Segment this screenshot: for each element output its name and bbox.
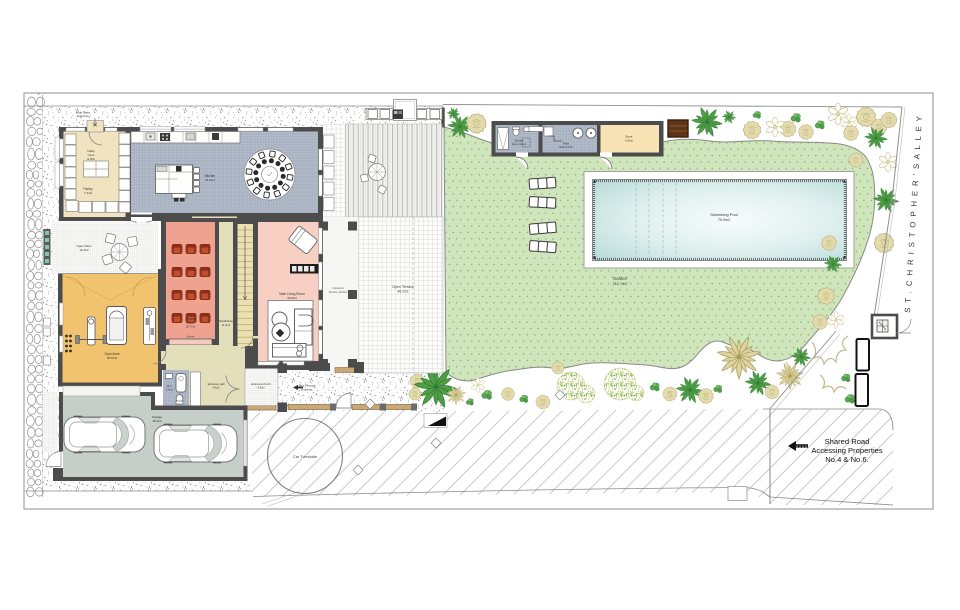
svg-text:46.9m2: 46.9m2 — [152, 419, 162, 423]
svg-text:70.0m2: 70.0m2 — [718, 218, 730, 222]
svg-text:Covered: Covered — [332, 286, 344, 290]
svg-text:96.2m2: 96.2m2 — [398, 289, 409, 293]
svg-text:Entrance: Entrance — [301, 387, 313, 391]
svg-text:Distribution: Distribution — [219, 319, 233, 323]
svg-text:Open Patio: Open Patio — [76, 244, 91, 248]
svg-text:41.9m2: 41.9m2 — [205, 178, 215, 182]
svg-text:40.8m2: 40.8m2 — [287, 296, 297, 300]
svg-text:Terrace 19.6m2: Terrace 19.6m2 — [328, 290, 348, 294]
svg-text:Plant: Plant — [563, 143, 569, 146]
svg-text:Entrance Porch: Entrance Porch — [251, 382, 271, 386]
svg-text:36.8m2: 36.8m2 — [107, 356, 118, 360]
svg-text:Accessing Properties: Accessing Properties — [811, 446, 883, 455]
svg-text:20.7m2: 20.7m2 — [186, 324, 196, 328]
svg-text:Entrance: Entrance — [77, 114, 89, 118]
svg-text:11.4m2: 11.4m2 — [222, 323, 231, 327]
svg-text:4.5m2: 4.5m2 — [257, 386, 265, 390]
svg-text:Car Turntable: Car Turntable — [293, 454, 318, 459]
svg-text:Shower: Shower — [514, 139, 523, 143]
svg-text:Shared Road: Shared Road — [825, 437, 870, 446]
svg-text:7.4m2: 7.4m2 — [84, 191, 93, 195]
svg-text:Garden: Garden — [613, 276, 628, 281]
svg-text:212.7m2: 212.7m2 — [612, 282, 627, 286]
svg-text:Swimming Pool: Swimming Pool — [710, 212, 738, 217]
svg-text:W.C.: W.C. — [167, 384, 173, 388]
svg-text:4.4m2: 4.4m2 — [212, 386, 220, 390]
svg-text:& WC: & WC — [87, 157, 96, 161]
svg-text:No.4 & No.6.: No.4 & No.6. — [825, 455, 868, 464]
svg-text:16.4m2: 16.4m2 — [79, 248, 89, 252]
svg-text:Entrance Hall: Entrance Hall — [208, 382, 225, 386]
svg-text:Store: Store — [625, 135, 633, 139]
svg-text:Screen: Screen — [186, 335, 195, 339]
svg-text:Cinema: Cinema — [185, 317, 196, 321]
svg-text:Room 4.4m2: Room 4.4m2 — [512, 143, 527, 146]
svg-text:Open Terrace: Open Terrace — [392, 285, 414, 289]
svg-text:5.9m2: 5.9m2 — [625, 138, 633, 142]
svg-text:Room 6.1m2: Room 6.1m2 — [559, 147, 573, 149]
svg-text:Garage: Garage — [152, 415, 162, 419]
svg-text:3.4m2: 3.4m2 — [166, 388, 174, 391]
